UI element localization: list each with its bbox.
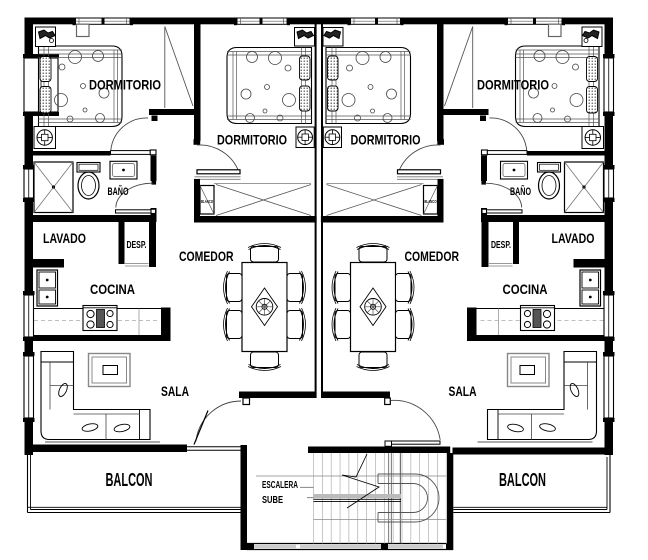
svg-text:COMEDOR: COMEDOR: [179, 248, 234, 264]
svg-text:DORMITORIO: DORMITORIO: [217, 132, 287, 148]
svg-text:SUBE: SUBE: [262, 495, 283, 506]
svg-text:COCINA: COCINA: [503, 281, 548, 297]
svg-text:BAÑO: BAÑO: [108, 185, 129, 198]
svg-text:DESP.: DESP.: [127, 240, 147, 251]
svg-text:DESP.: DESP.: [491, 240, 511, 251]
svg-text:BALCON: BALCON: [106, 470, 153, 490]
svg-text:LAVADO: LAVADO: [552, 230, 595, 246]
svg-text:COCINA: COCINA: [90, 281, 135, 297]
svg-text:BALCON: BALCON: [499, 470, 546, 490]
svg-text:BLANCO: BLANCO: [425, 199, 437, 204]
svg-text:BAÑO: BAÑO: [510, 185, 531, 198]
svg-text:COMEDOR: COMEDOR: [405, 248, 460, 264]
svg-text:SALA: SALA: [161, 383, 189, 399]
svg-text:DORMITORIO: DORMITORIO: [477, 77, 549, 93]
svg-text:DORMITORIO: DORMITORIO: [351, 132, 421, 148]
svg-text:BLANCO: BLANCO: [201, 199, 213, 204]
svg-text:DORMITORIO: DORMITORIO: [89, 77, 161, 93]
svg-text:LAVADO: LAVADO: [43, 230, 86, 246]
svg-text:ESCALERA: ESCALERA: [262, 480, 298, 491]
svg-text:SALA: SALA: [449, 383, 477, 399]
